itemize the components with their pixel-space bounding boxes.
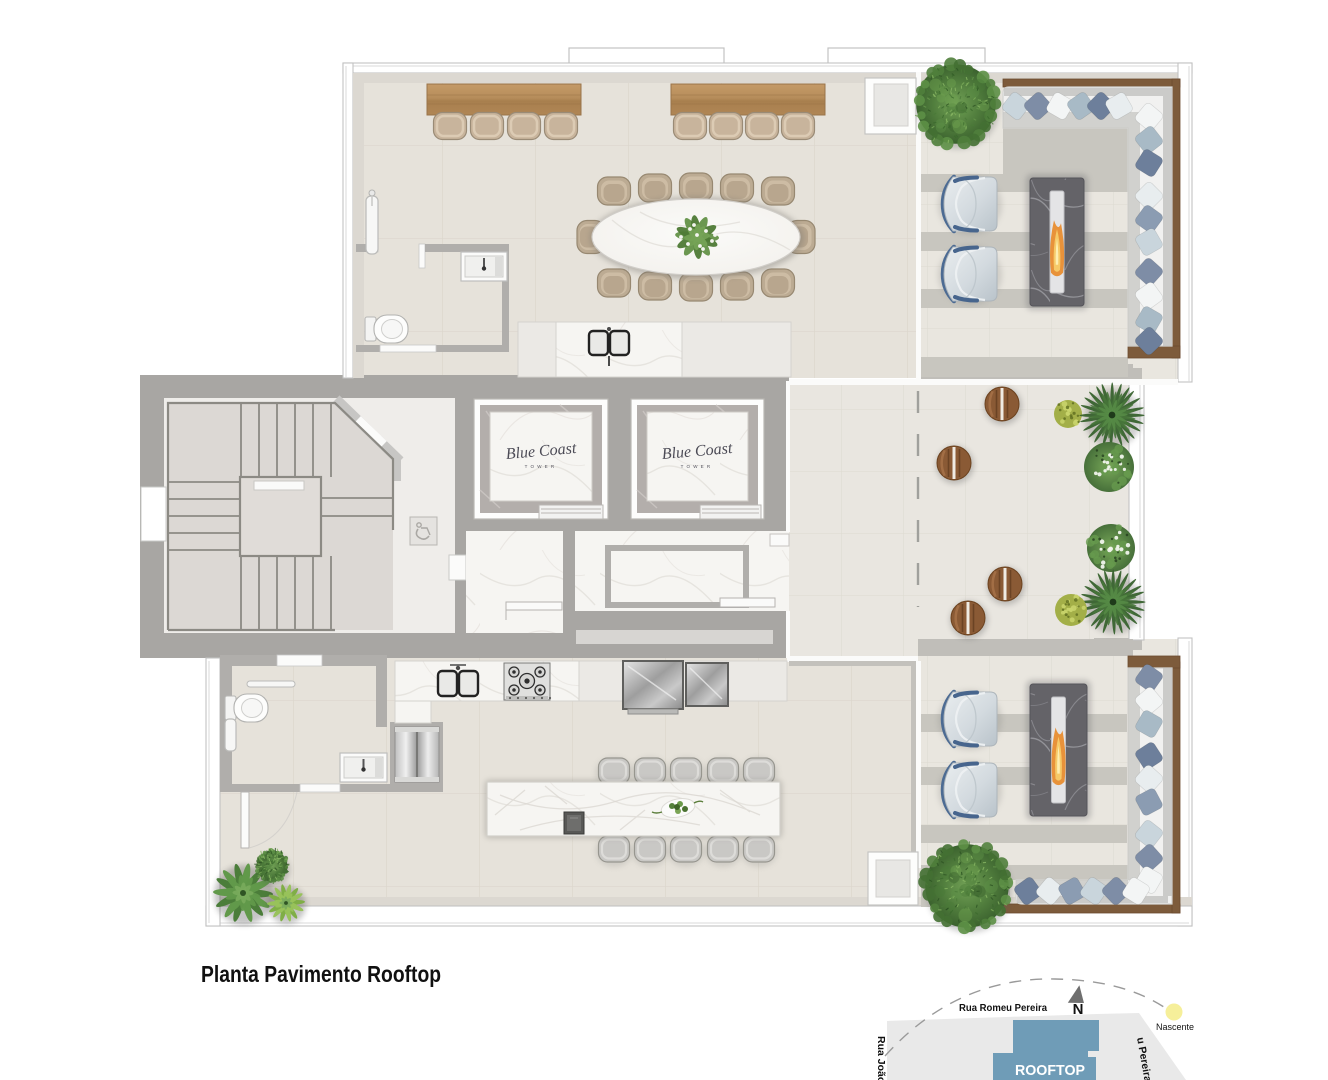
svg-text:Planta Pavimento Rooftop: Planta Pavimento Rooftop (201, 961, 441, 987)
svg-text:Rua João P: Rua João P (875, 1036, 887, 1080)
svg-text:N: N (1073, 1001, 1084, 1018)
svg-text:Rua Romeu Pereira: Rua Romeu Pereira (959, 1002, 1047, 1014)
svg-text:Nascente: Nascente (1156, 1022, 1194, 1032)
svg-text:ROOFTOP: ROOFTOP (1015, 1062, 1085, 1079)
svg-text:TOWER: TOWER (525, 464, 558, 469)
svg-text:TOWER: TOWER (681, 464, 714, 469)
